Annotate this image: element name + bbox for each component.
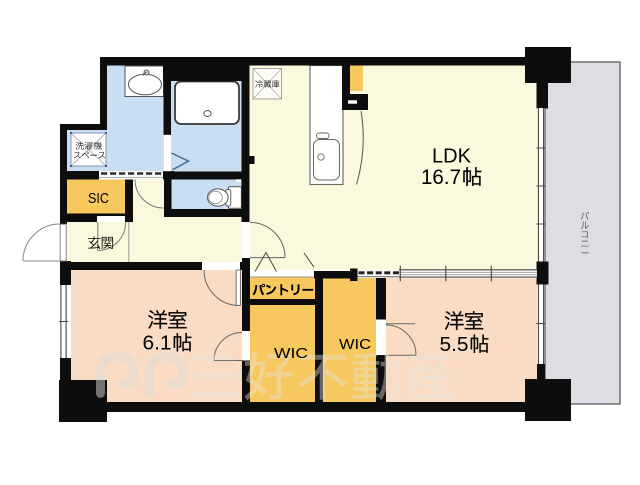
svg-text:WIC: WIC [339,336,371,353]
svg-text:6.1: 6.1 [143,332,172,355]
svg-text:WIC: WIC [274,345,308,362]
svg-text:16.7: 16.7 [421,166,461,189]
svg-text:SIC: SIC [88,190,109,207]
svg-text:LDK: LDK [432,145,471,168]
svg-text:5.5: 5.5 [440,333,469,356]
